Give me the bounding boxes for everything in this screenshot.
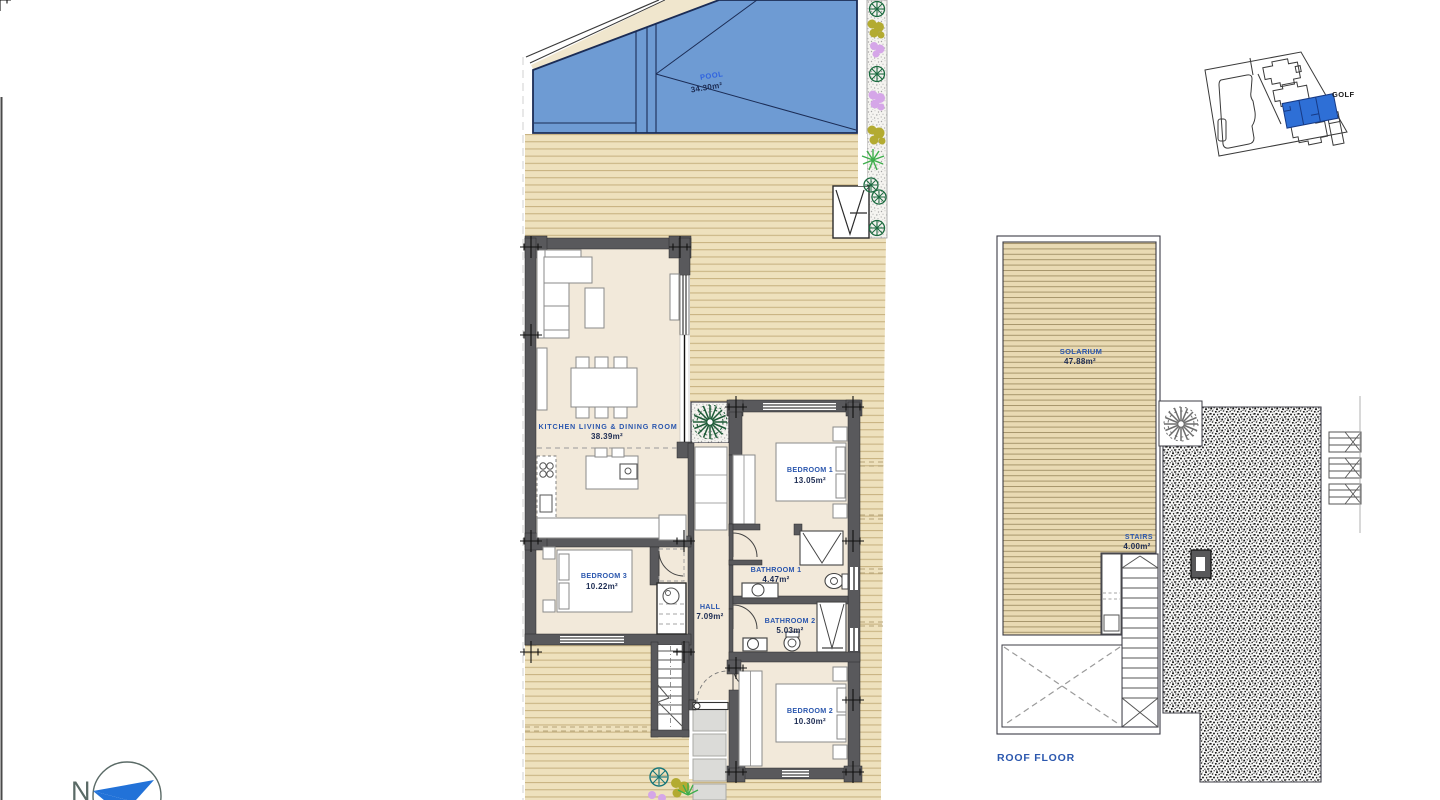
svg-text:7.09m²: 7.09m² — [696, 612, 723, 621]
svg-text:BEDROOM 2: BEDROOM 2 — [787, 706, 833, 715]
svg-text:BEDROOM 1: BEDROOM 1 — [787, 465, 833, 474]
svg-text:STAIRS: STAIRS — [1125, 534, 1153, 541]
svg-text:SOLARIUM: SOLARIUM — [1060, 347, 1102, 356]
svg-text:38.39m²: 38.39m² — [591, 432, 623, 441]
svg-text:10.22m²: 10.22m² — [586, 582, 618, 591]
svg-text:BATHROOM 2: BATHROOM 2 — [765, 616, 816, 625]
svg-text:10.30m²: 10.30m² — [794, 717, 826, 726]
svg-text:N: N — [71, 776, 91, 800]
svg-text:ROOF FLOOR: ROOF FLOOR — [997, 752, 1075, 764]
svg-text:4.00m²: 4.00m² — [1123, 542, 1150, 551]
svg-text:4.47m²: 4.47m² — [762, 575, 789, 584]
svg-text:KITCHEN LIVING & DINING R: KITCHEN LIVING & DINING ROOM — [539, 422, 678, 431]
svg-text:HALL: HALL — [700, 602, 721, 611]
svg-text:5.03m²: 5.03m² — [776, 626, 803, 635]
svg-text:47.88m²: 47.88m² — [1064, 357, 1096, 366]
svg-text:BEDROOM 3: BEDROOM 3 — [581, 571, 627, 580]
svg-text:GOLF: GOLF — [1332, 90, 1354, 99]
svg-text:13.05m²: 13.05m² — [794, 476, 826, 485]
svg-text:BATHROOM 1: BATHROOM 1 — [751, 565, 802, 574]
